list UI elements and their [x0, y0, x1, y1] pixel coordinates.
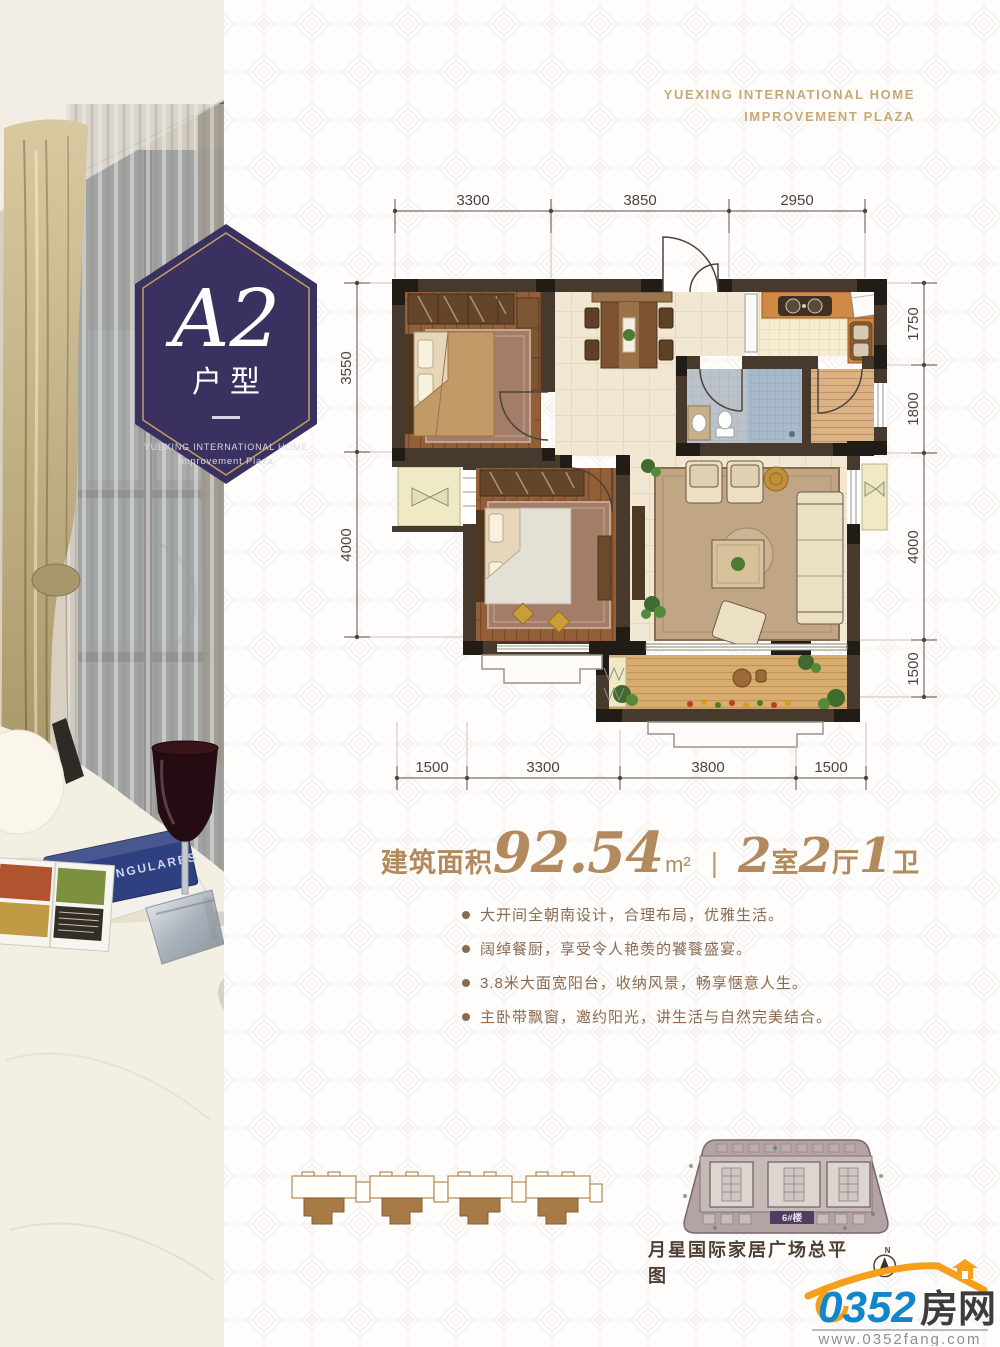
brand-line2: IMPROVEMENT PLAZA	[664, 106, 915, 128]
dim-bottom-1: 1500	[415, 759, 448, 776]
unit-badge: A2 户型 YUEXING INTERNATIONAL HOME Improve…	[135, 224, 317, 484]
area-unit: m²	[665, 852, 691, 878]
room-count-3: 1	[859, 828, 892, 884]
compass-north-label: N	[884, 1246, 890, 1255]
sofa	[797, 492, 843, 624]
feature-item: 大开间全朝南设计，合理布局，优雅生活。	[462, 906, 832, 925]
feature-text: 阔绰餐厨，享受令人艳羡的饕餮盛宴。	[480, 940, 752, 959]
dim-right-1: 1750	[905, 307, 922, 340]
bullet-icon	[462, 979, 470, 987]
logo-cn: 房网	[920, 1289, 996, 1331]
area-label: 建筑面积	[381, 841, 493, 880]
dim-right-3: 4000	[905, 530, 922, 563]
feature-list: 大开间全朝南设计，合理布局，优雅生活。 阔绰餐厨，享受令人艳羡的饕餮盛宴。 3.…	[462, 906, 832, 1042]
room-count-2: 2	[798, 828, 831, 884]
building-banner-label: 6#楼	[782, 1212, 803, 1224]
feature-text: 主卧带飘窗，邀约阳光，讲生活与自然完美结合。	[480, 1008, 832, 1027]
room-label-3: 卫	[892, 841, 919, 880]
dim-right-2: 1800	[905, 392, 922, 425]
feature-item: 3.8米大面宽阳台，收纳风景，畅享惬意人生。	[462, 974, 832, 993]
gold-side-table	[764, 467, 788, 491]
dim-bottom-4: 1500	[814, 759, 847, 776]
balcony-table	[733, 669, 751, 687]
open-magazine	[0, 857, 115, 951]
floorplan: 3300 3850 2950 3550 4000 1750 1800 4000 …	[340, 185, 940, 800]
building-key-plan	[288, 1168, 610, 1230]
footer-logo: 0352 房网 www.0352fang.com	[788, 1256, 1000, 1346]
badge-unit-code: A2	[165, 272, 281, 365]
curtain-tieback	[32, 564, 80, 596]
dim-top-1: 3300	[456, 192, 489, 209]
dim-bottom-3: 3800	[691, 759, 724, 776]
feature-text: 大开间全朝南设计，合理布局，优雅生活。	[480, 906, 784, 925]
tv-bench	[632, 506, 645, 600]
area-value: 92.54	[493, 820, 663, 886]
dim-top-2: 3850	[623, 192, 656, 209]
feature-item: 阔绰餐厨，享受令人艳羡的饕餮盛宴。	[462, 940, 832, 959]
bullet-icon	[462, 945, 470, 953]
balcony-railing	[648, 722, 823, 747]
dim-bottom-2: 3300	[526, 759, 559, 776]
brand-line1: YUEXING INTERNATIONAL HOME	[664, 84, 915, 106]
feature-item: 主卧带飘窗，邀约阳光，讲生活与自然完美结合。	[462, 1008, 832, 1027]
room-label-1: 室	[771, 841, 798, 880]
shower-drain	[789, 431, 795, 437]
room-count-1: 2	[738, 828, 771, 884]
room-label-2: 厅	[832, 841, 859, 880]
logo-url: www.0352fang.com	[818, 1331, 982, 1346]
interior-photo: CASAS SINGULARES Yue	[0, 0, 224, 1347]
summary-divider: |	[711, 847, 718, 879]
badge-divider	[212, 416, 240, 419]
site-plan: 6#楼	[655, 1136, 895, 1240]
poster-page: CASAS SINGULARES Yue	[0, 0, 1000, 1347]
badge-sub-line2: Improvement Plaza	[178, 456, 273, 467]
brand-wordmark: YUEXING INTERNATIONAL HOME IMPROVEMENT P…	[664, 84, 915, 128]
kitchen-cabinet	[745, 294, 757, 352]
badge-unit-label: 户型	[192, 366, 268, 399]
logo-number: 0352	[818, 1283, 916, 1332]
dim-right-4: 1500	[905, 652, 922, 685]
toilet-bowl	[718, 411, 732, 429]
bay-decor-bottom-left	[482, 655, 602, 683]
bullet-icon	[462, 1013, 470, 1021]
living-furniture	[632, 459, 843, 650]
bay-window-right	[862, 464, 887, 530]
badge-sub-line1: YUEXING INTERNATIONAL HOME	[144, 442, 308, 452]
bedroom1-furniture	[405, 294, 539, 442]
dim-left-2: 4000	[340, 528, 355, 561]
feature-text: 3.8米大面宽阳台，收纳风景，畅享惬意人生。	[480, 974, 808, 993]
area-summary: 建筑面积92.54m²|2室2厅1卫	[390, 820, 910, 886]
hall-floor	[555, 356, 676, 456]
dim-left-1: 3550	[340, 351, 355, 384]
dim-top-3: 2950	[780, 192, 813, 209]
bullet-icon	[462, 911, 470, 919]
